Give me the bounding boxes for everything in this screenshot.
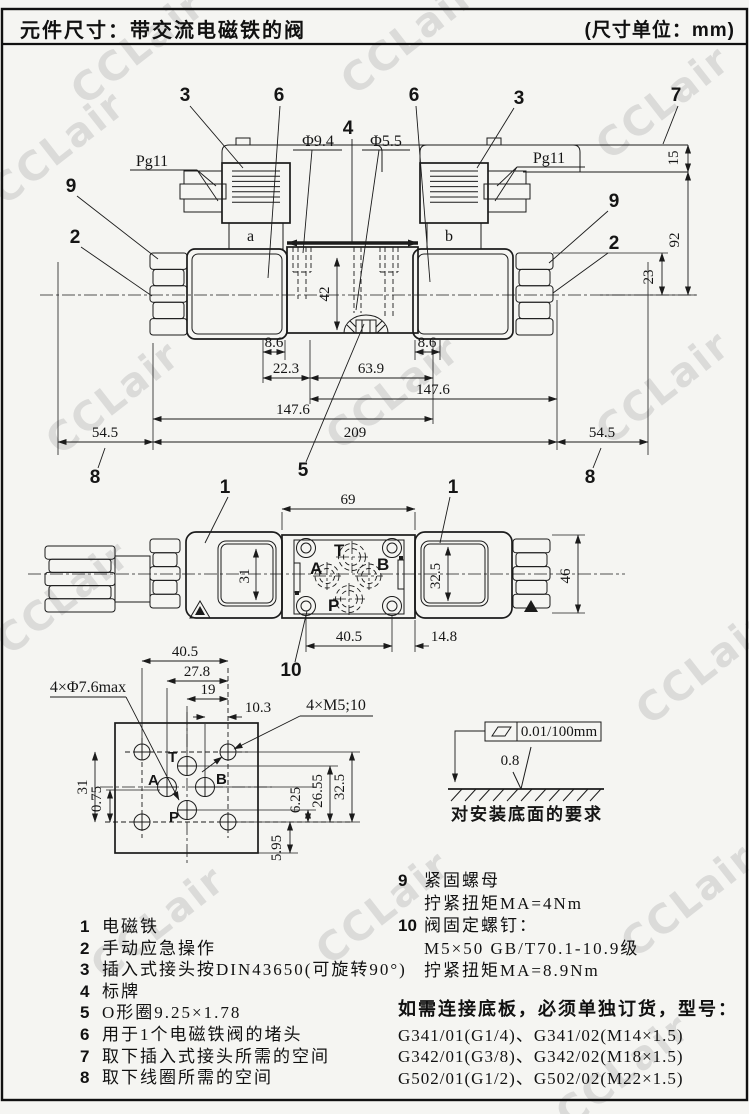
manual-override-knob <box>45 546 150 612</box>
surface-requirement: 0.01/100mm 0.8 对安装底面的要求 <box>448 722 604 824</box>
dim-69: 69 <box>341 492 356 508</box>
callout-7: 7 <box>671 85 682 106</box>
dim-92: 92 <box>667 233 683 248</box>
dim-32.5: 32.5 <box>332 774 348 800</box>
callout-3-left: 3 <box>180 85 191 106</box>
callout-1-left: 1 <box>220 477 231 498</box>
removal-space-outline <box>229 145 688 172</box>
roughness-value: 0.8 <box>501 753 520 769</box>
dia-9.4-label: Φ9.4 <box>302 133 334 150</box>
port-label-b: B <box>377 555 389 574</box>
surface-caption: 对安装底面的要求 <box>451 804 603 824</box>
item-number: 2 <box>80 939 96 959</box>
port-plate: T A B P <box>282 535 415 618</box>
item-number: 4 <box>80 982 96 1002</box>
solenoid-a-label: a <box>247 228 254 245</box>
cable-gland-right <box>484 171 530 212</box>
legend-item: 1电磁铁 <box>80 912 407 934</box>
legend-item-9: 9紧固螺母 <box>398 866 639 889</box>
callout-6-left: 6 <box>274 85 285 106</box>
dim-5.95: 5.95 <box>269 835 285 861</box>
order-model-line: G341/01(G1/4)、G341/02(M14×1.5) <box>398 1021 738 1042</box>
item-text: 拧紧扭矩MA=8.9Nm <box>424 956 600 981</box>
item-number: 6 <box>80 1025 96 1045</box>
item-number: 7 <box>80 1047 96 1067</box>
item-text: 插入式接头按DIN43650(可旋转90°) <box>102 955 407 980</box>
dim-8.6-right: 8.6 <box>418 335 437 351</box>
torque-note-9: 拧紧扭矩MA=4Nm <box>398 889 639 912</box>
knurled-nut-left <box>150 253 187 335</box>
dim-15: 15 <box>666 151 682 166</box>
dim-23: 23 <box>641 270 657 285</box>
dim-42: 42 <box>317 287 333 302</box>
retaining-nut-left <box>150 539 180 608</box>
item-number: 10 <box>398 916 424 936</box>
pg11-label-right: Pg11 <box>533 150 565 167</box>
callout-4: 4 <box>343 118 354 139</box>
dim-10.3: 10.3 <box>245 700 271 716</box>
port-label-a: A <box>310 559 322 578</box>
callout-8-right: 8 <box>585 467 596 488</box>
item-number: 5 <box>80 1003 96 1023</box>
dim-27.8: 27.8 <box>184 664 210 680</box>
solenoid-b-label: b <box>445 228 453 245</box>
subplate-order-note: 如需连接底板，必须单独订货，型号： G341/01(G1/4)、G341/02(… <box>398 995 738 1085</box>
order-model-line: G342/01(G3/8)、G342/02(M18×1.5) <box>398 1042 738 1063</box>
dim-40.5: 40.5 <box>172 644 198 660</box>
callout-10: 10 <box>280 660 301 681</box>
item-text: 拧紧扭矩MA=4Nm <box>424 889 583 914</box>
nameplate <box>287 240 418 247</box>
dim-8.6-left: 8.6 <box>265 335 284 351</box>
callout-9-left: 9 <box>66 176 77 197</box>
legend-item: 6用于1个电磁铁阀的堵头 <box>80 1020 407 1042</box>
mounting-pattern-view: T A B P 40.5 27.8 19 10.3 31 <box>50 644 373 865</box>
legend-item-10: 10阀固定螺钉： <box>398 911 639 934</box>
dim-31: 31 <box>237 569 253 584</box>
ground-hatch <box>448 789 604 801</box>
top-view: 31 <box>28 477 625 681</box>
item-number: 8 <box>80 1068 96 1088</box>
legend-item: 7取下插入式接头所需的空间 <box>80 1042 407 1064</box>
dim-32.5: 32.5 <box>428 563 444 589</box>
torque-note-10: 拧紧扭矩MA=8.9Nm <box>398 956 639 979</box>
front-view: a b <box>40 85 700 488</box>
callout-8-left: 8 <box>90 467 101 488</box>
vent-slats <box>232 171 280 202</box>
ports <box>313 541 383 615</box>
callout-1-right: 1 <box>448 477 459 498</box>
callout-5: 5 <box>298 460 309 481</box>
item-text: 取下线圈所需的空间 <box>102 1063 273 1088</box>
item-number: 3 <box>80 960 96 980</box>
vent-slats <box>430 171 478 202</box>
dim-147.6-left: 147.6 <box>276 402 310 418</box>
order-model-line: G502/01(G1/2)、G502/02(M22×1.5) <box>398 1064 738 1085</box>
port-label-a: A <box>148 772 159 789</box>
screw-spec-10: M5×50 GB/T70.1-10.9级 <box>398 934 639 957</box>
legend-item: 2手动应急操作 <box>80 934 407 956</box>
mounting-dimensions: 40.5 27.8 19 10.3 31 0.75 <box>75 644 360 861</box>
holes-label: 4×Φ7.6max <box>50 679 126 696</box>
dim-54.5-right: 54.5 <box>589 425 615 441</box>
item-text: M5×50 GB/T70.1-10.9级 <box>424 934 639 959</box>
item-text: 紧固螺母 <box>424 866 500 891</box>
cable-gland-left <box>180 171 226 212</box>
flatness-icon <box>492 727 511 736</box>
legend-item: 3插入式接头按DIN43650(可旋转90°) <box>80 955 407 977</box>
callout-6-right: 6 <box>409 85 420 106</box>
legend-item: 5O形圈9.25×1.78 <box>80 998 407 1020</box>
legend-list-left: 1电磁铁 2手动应急操作 3插入式接头按DIN43650(可旋转90°) 4标牌… <box>80 912 407 1085</box>
mounting-face <box>115 723 258 853</box>
dim-40.5: 40.5 <box>336 629 362 645</box>
dim-147.6-right: 147.6 <box>416 382 450 398</box>
legend-list-right: 9紧固螺母 拧紧扭矩MA=4Nm 10阀固定螺钉： M5×50 GB/T70.1… <box>398 866 639 979</box>
item-number: 1 <box>80 917 96 937</box>
port-label-p: P <box>328 596 339 615</box>
dim-22.3: 22.3 <box>273 361 299 377</box>
dim-209: 209 <box>344 425 367 441</box>
port-label-b: B <box>216 771 227 788</box>
screws-label: 4×M5;10 <box>306 697 366 714</box>
dim-6.25: 6.25 <box>288 787 304 813</box>
retaining-nut-right <box>513 539 550 608</box>
item-text: 阀固定螺钉： <box>424 911 538 936</box>
callout-9-right: 9 <box>609 191 620 212</box>
dim-0.75: 0.75 <box>89 786 105 812</box>
internal-bores <box>293 247 398 317</box>
pg11-label-left: Pg11 <box>136 153 168 170</box>
port-label-t: T <box>168 749 177 766</box>
solenoid-a-top: 31 <box>186 532 282 618</box>
port-label-p: P <box>169 809 179 826</box>
knurled-nut-right <box>516 253 553 335</box>
item-number: 9 <box>398 871 424 891</box>
solenoid-tube-left <box>187 249 287 339</box>
dim-46: 46 <box>558 568 574 584</box>
dim-63.9: 63.9 <box>358 361 384 377</box>
o-ring <box>344 315 388 333</box>
dim-14.8: 14.8 <box>431 629 457 645</box>
dim-19: 19 <box>201 682 216 698</box>
flatness-value: 0.01/100mm <box>521 724 598 740</box>
dim-26.55: 26.55 <box>310 774 326 808</box>
solenoid-b-top: 32.5 <box>415 532 538 618</box>
callout-3-right: 3 <box>514 88 525 109</box>
order-title: 如需连接底板，必须单独订货，型号： <box>398 995 738 1021</box>
dim-54.5-left: 54.5 <box>92 425 118 441</box>
legend-item: 8取下线圈所需的空间 <box>80 1063 407 1085</box>
dia-5.5-label: Φ5.5 <box>370 133 402 150</box>
port-label-t: T <box>334 541 345 560</box>
drawing-page: CCLair CCLair CCLair CCLair CCLair CCLai… <box>0 0 749 1114</box>
callout-2-left: 2 <box>70 227 81 248</box>
callout-2-right: 2 <box>609 233 620 254</box>
